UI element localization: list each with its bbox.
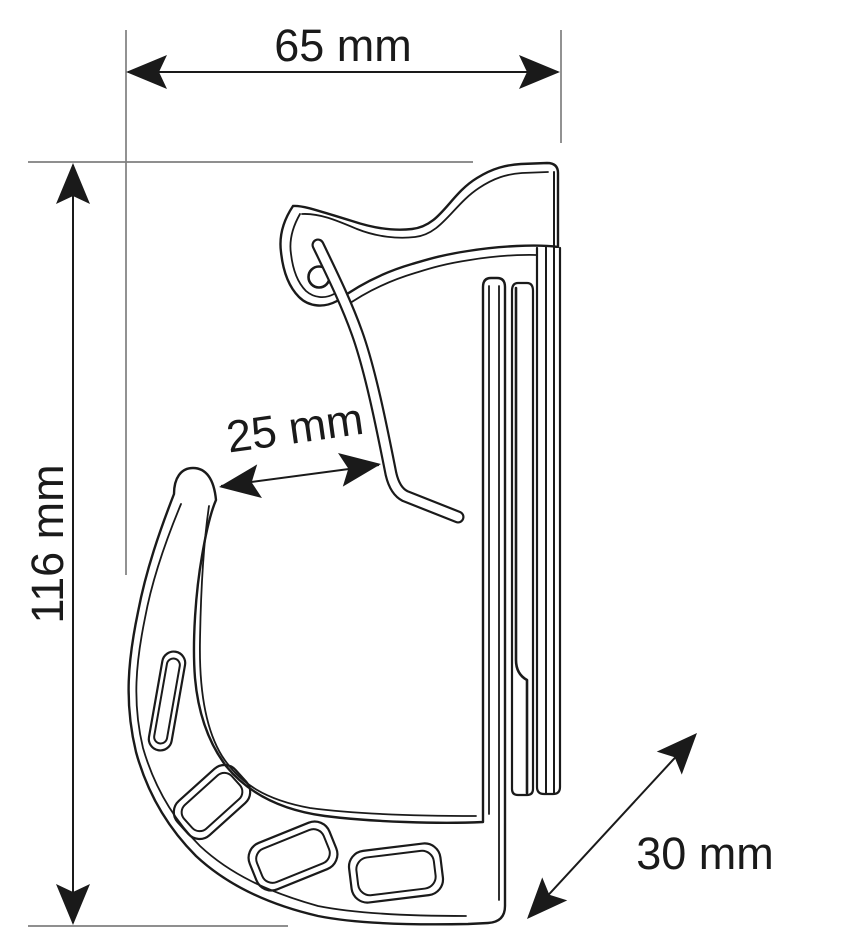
dimension-height: 116 mm [22, 163, 90, 925]
dimension-height-label: 116 mm [22, 464, 73, 623]
dimension-width-label: 65 mm [274, 20, 412, 71]
technical-drawing-page: 65 mm 116 mm 25 mm 30 mm [0, 0, 866, 942]
arrowhead-gap-left-icon [217, 464, 262, 503]
dimension-depth-label: 30 mm [636, 828, 774, 879]
wall-plate [512, 172, 560, 795]
hook-dimension-diagram: 65 mm 116 mm 25 mm 30 mm [0, 0, 866, 942]
dimension-hook-gap: 25 mm [217, 393, 384, 504]
dimension-hook-gap-label: 25 mm [223, 393, 366, 463]
extension-lines [28, 30, 561, 926]
dimension-width: 65 mm [126, 20, 560, 89]
hook-arm-outline [129, 278, 505, 924]
hook-object [129, 163, 560, 924]
hook-arm-inner-line-right [200, 506, 476, 816]
arrowhead-gap-right-icon [338, 447, 383, 486]
arrowhead-depth-lower-icon [514, 877, 567, 930]
plate-back [537, 248, 560, 794]
wire-pin-core [318, 245, 458, 517]
arrowhead-depth-upper-icon [657, 721, 710, 774]
